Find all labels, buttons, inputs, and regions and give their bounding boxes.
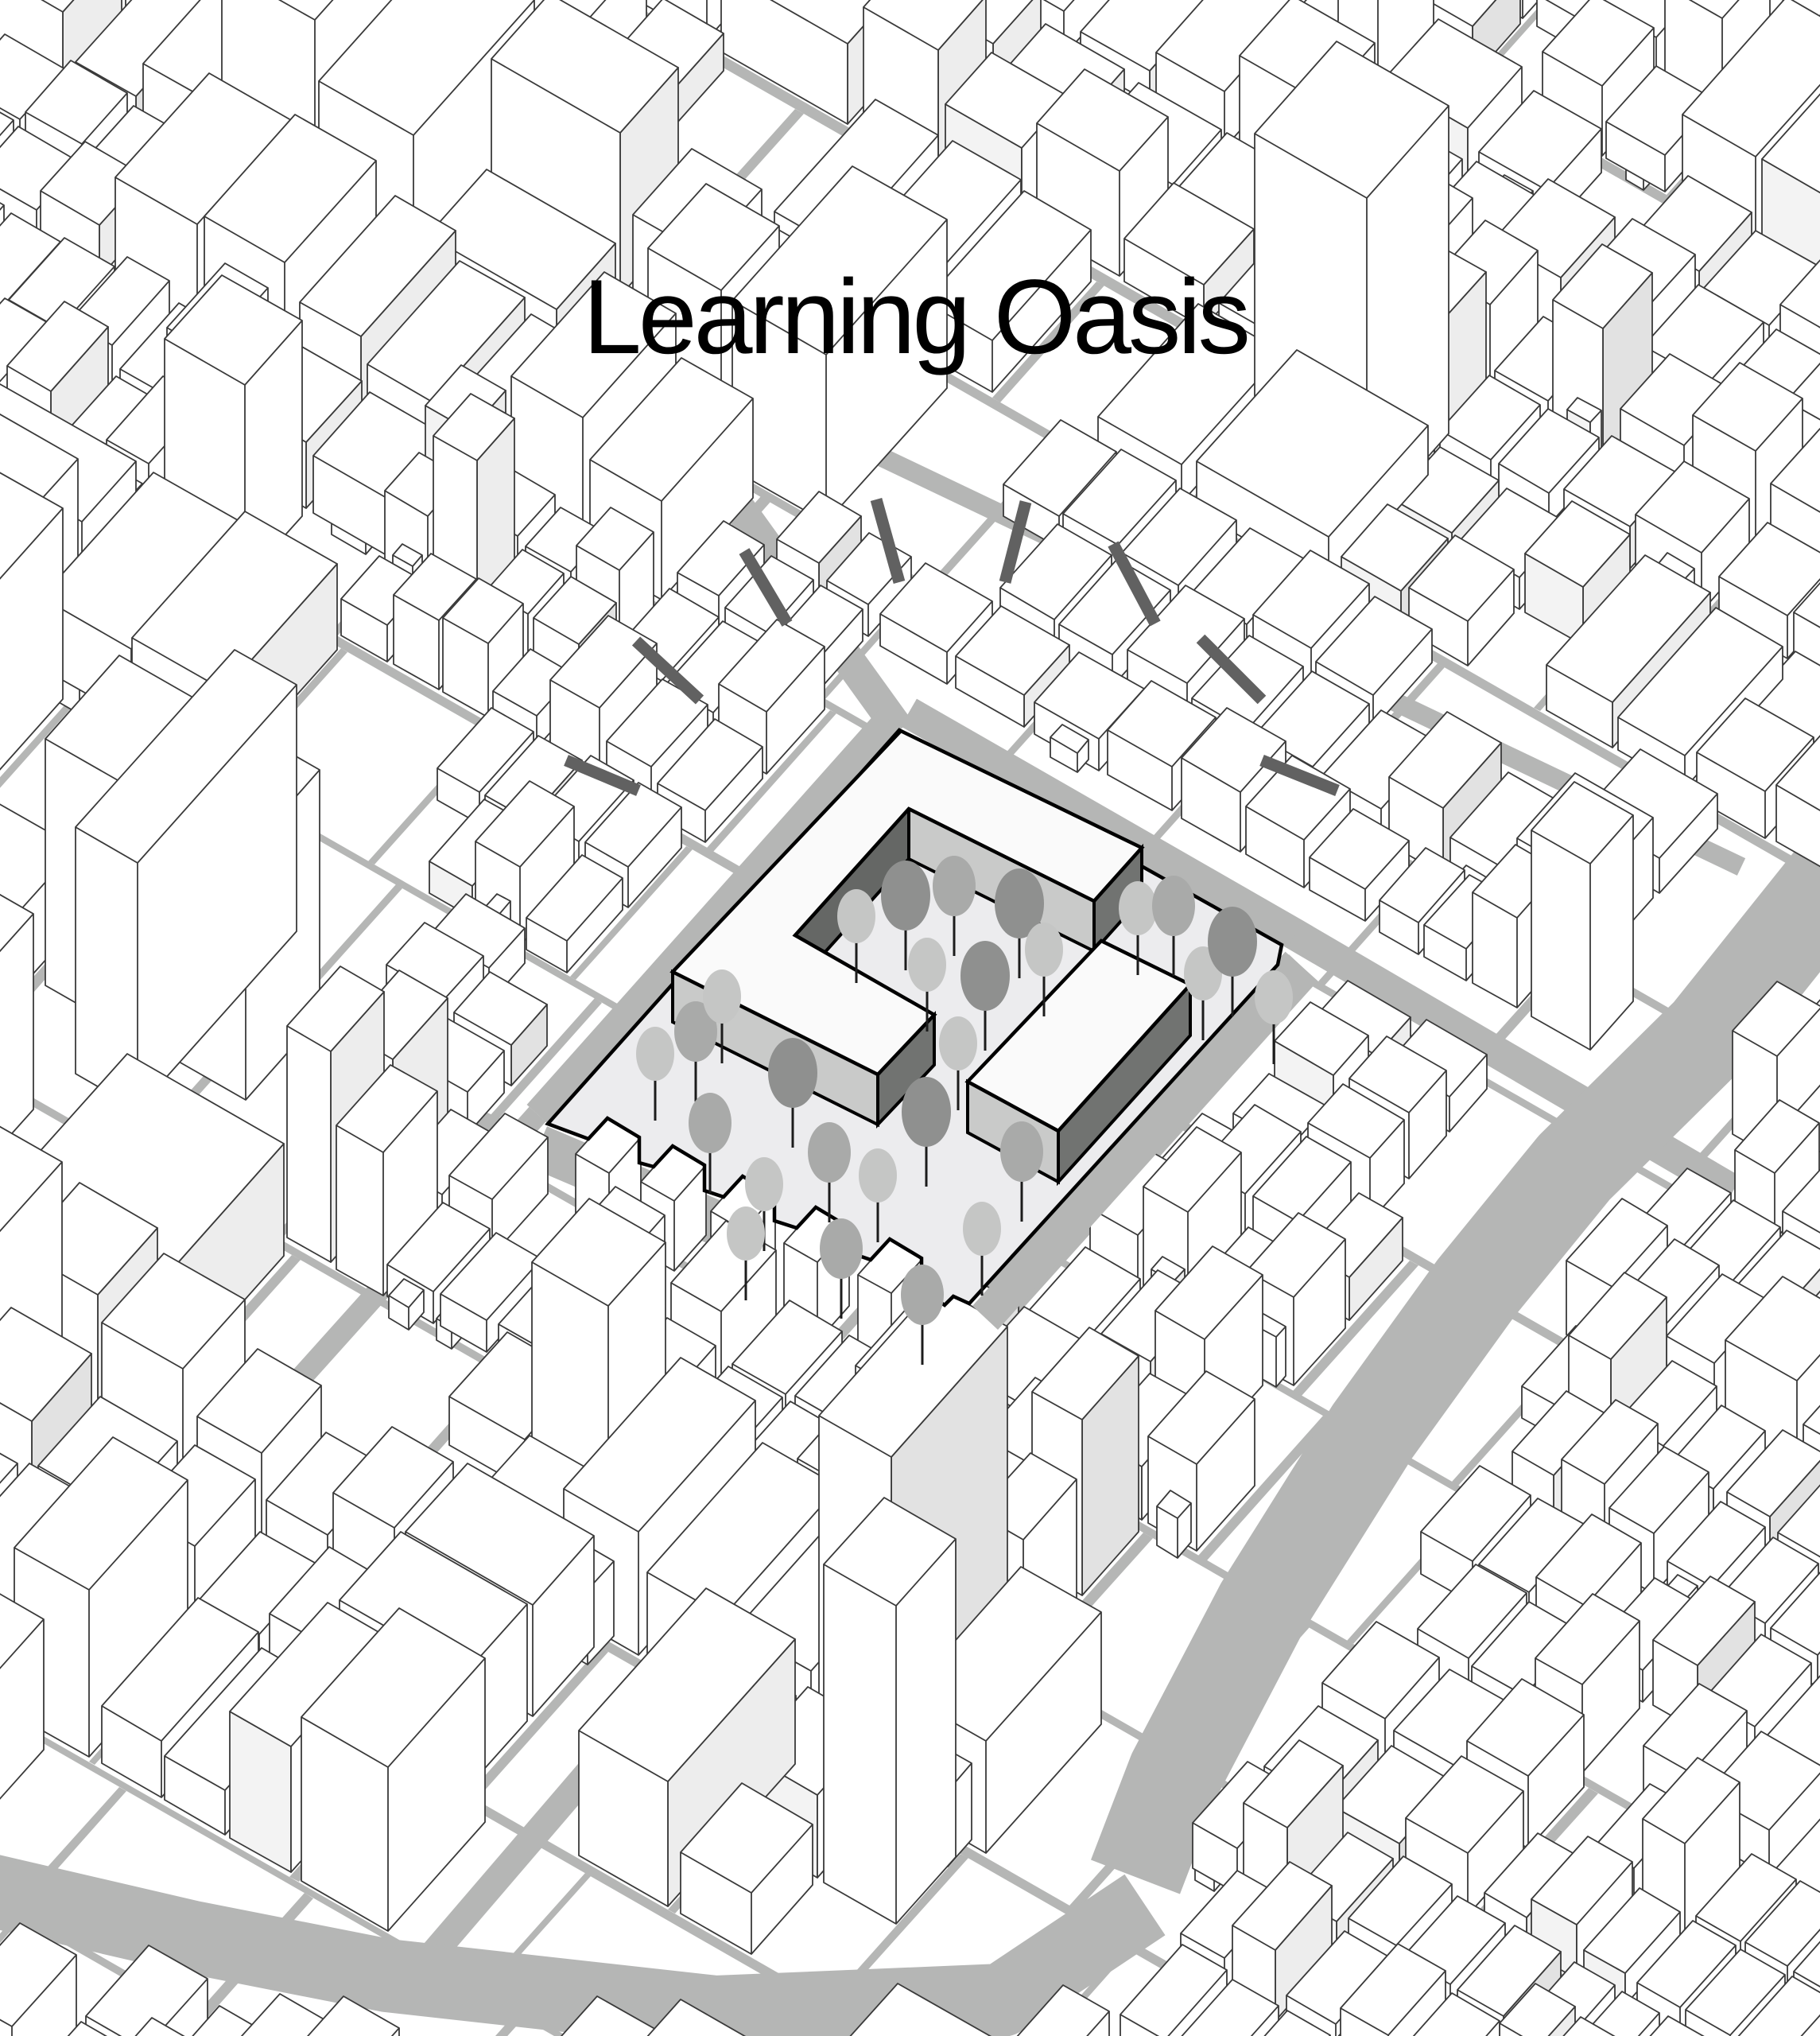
svg-text:Learning Oasis: Learning Oasis (583, 258, 1248, 376)
